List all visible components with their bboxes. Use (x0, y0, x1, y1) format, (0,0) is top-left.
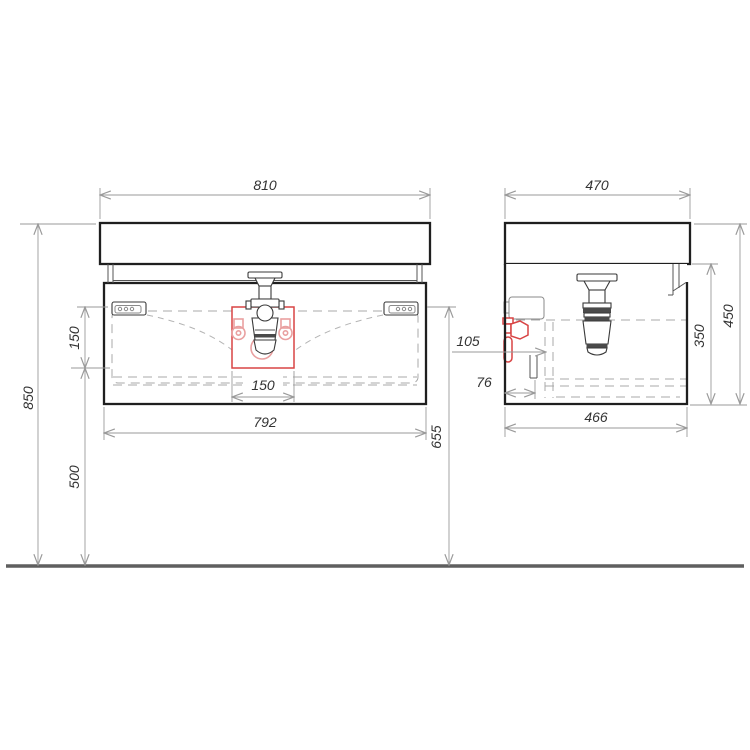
dim-front-drain-width: 150 (251, 377, 275, 393)
technical-drawing-page: 810 850 150 500 150 792 655 470 (0, 0, 750, 750)
front-slide-bracket-left (112, 302, 146, 315)
dim-side-body-height: 350 (691, 324, 707, 348)
dim-front-rail-height: 655 (428, 425, 444, 449)
dim-side-drawer-back-offset: 105 (456, 333, 480, 349)
vanity-technical-drawing: 810 850 150 500 150 792 655 470 (0, 0, 750, 750)
dim-front-top-width: 810 (253, 177, 277, 193)
dim-front-lower-height: 500 (66, 465, 82, 489)
dim-side-overall-height: 450 (720, 304, 736, 328)
dim-front-overall-height: 850 (20, 386, 36, 410)
side-view (503, 223, 690, 404)
side-junction-box (504, 297, 544, 319)
dim-side-body-depth: 466 (584, 409, 608, 425)
front-slide-bracket-right (384, 302, 418, 315)
dim-side-rail-back-offset: 76 (476, 374, 492, 390)
side-countertop (505, 223, 690, 264)
front-countertop (100, 223, 430, 264)
dim-front-body-width: 792 (253, 414, 277, 430)
dim-side-top-depth: 470 (585, 177, 609, 193)
dim-front-hinge-offset: 150 (66, 326, 82, 350)
